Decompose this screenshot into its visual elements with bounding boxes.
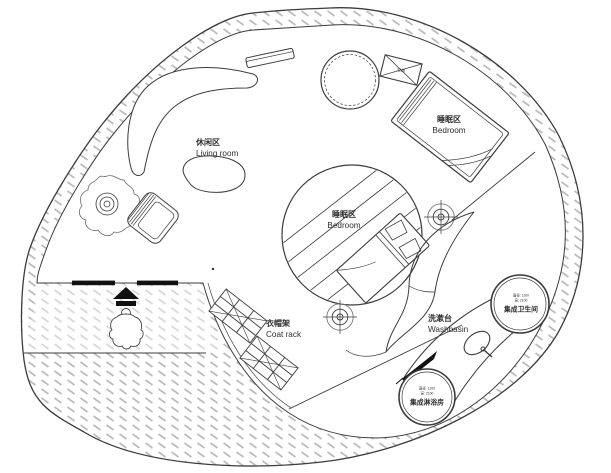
door-threshold-1 bbox=[72, 281, 115, 286]
bathroom-pod-dim1: 直径: 1100 bbox=[513, 293, 529, 298]
shower-pod-name: 集成淋浴房 bbox=[409, 398, 444, 407]
bedroom-center-label-en: Bedroom bbox=[327, 221, 360, 230]
coat-rack-label-zh: 衣帽架 bbox=[266, 318, 290, 328]
living-room-label-zh: 休闲区 bbox=[195, 137, 220, 147]
door-threshold-2 bbox=[137, 281, 178, 286]
dot-mark bbox=[212, 268, 214, 270]
washbasin-label-en: Washbasin bbox=[428, 325, 469, 334]
shower-pod-dim2: 高: 2100 bbox=[421, 391, 434, 396]
living-room-label-en: Living room bbox=[196, 149, 239, 158]
bedroom-upper-label-en: Bedroom bbox=[432, 126, 465, 135]
bedroom-upper-label-zh: 睡眠区 bbox=[437, 114, 461, 124]
shower-pod-dim1: 直径: 1100 bbox=[419, 386, 435, 391]
washbasin-label-zh: 洗漱台 bbox=[428, 313, 452, 323]
bedroom-center-label-zh: 睡眠区 bbox=[332, 209, 356, 219]
bathroom-pod-name: 集成卫生间 bbox=[503, 305, 538, 314]
shower-pod bbox=[399, 369, 455, 425]
floor-plan: 休闲区 Living room 空调 睡眠区 Bedroom bbox=[0, 0, 611, 473]
floor-plan-svg: 休闲区 Living room 空调 睡眠区 Bedroom bbox=[0, 0, 611, 473]
bathroom-pod-dim2: 高: 2100 bbox=[515, 298, 528, 303]
round-table bbox=[321, 51, 379, 109]
bathroom-pod bbox=[491, 275, 549, 333]
coat-rack-label-en: Coat rack bbox=[266, 330, 302, 339]
